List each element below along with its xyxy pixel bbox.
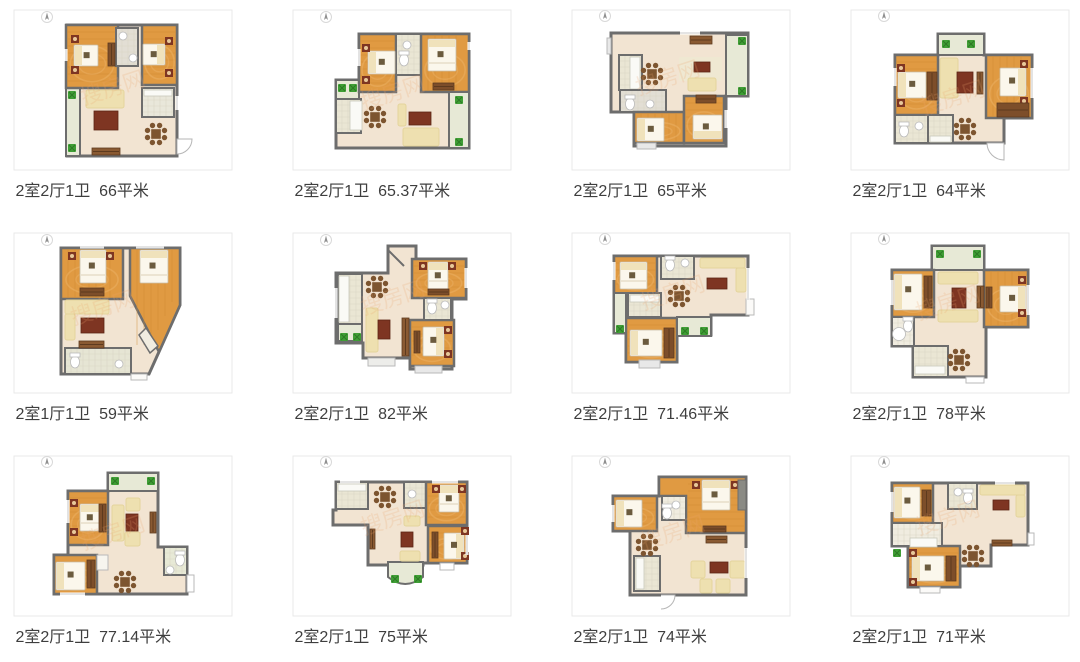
svg-text:2室2厅1卫 71平米: 2室2厅1卫 71平米 <box>853 628 986 646</box>
svg-text:2室2厅1卫 75平米: 2室2厅1卫 75平米 <box>295 628 428 646</box>
svg-text:2室2厅1卫 77.14平米: 2室2厅1卫 77.14平米 <box>16 628 172 646</box>
svg-text:2室2厅1卫 64平米: 2室2厅1卫 64平米 <box>853 182 986 200</box>
svg-text:2室2厅1卫 66平米: 2室2厅1卫 66平米 <box>16 182 149 200</box>
svg-text:2室2厅1卫 74平米: 2室2厅1卫 74平米 <box>574 628 707 646</box>
svg-text:2室2厅1卫 78平米: 2室2厅1卫 78平米 <box>853 405 986 423</box>
svg-text:2室2厅1卫 71.46平米: 2室2厅1卫 71.46平米 <box>574 405 730 423</box>
svg-text:2室2厅1卫 65.37平米: 2室2厅1卫 65.37平米 <box>295 182 451 200</box>
svg-text:2室2厅1卫 65平米: 2室2厅1卫 65平米 <box>574 182 707 200</box>
svg-text:2室1厅1卫 59平米: 2室1厅1卫 59平米 <box>16 405 149 423</box>
svg-text:2室2厅1卫 82平米: 2室2厅1卫 82平米 <box>295 405 428 423</box>
